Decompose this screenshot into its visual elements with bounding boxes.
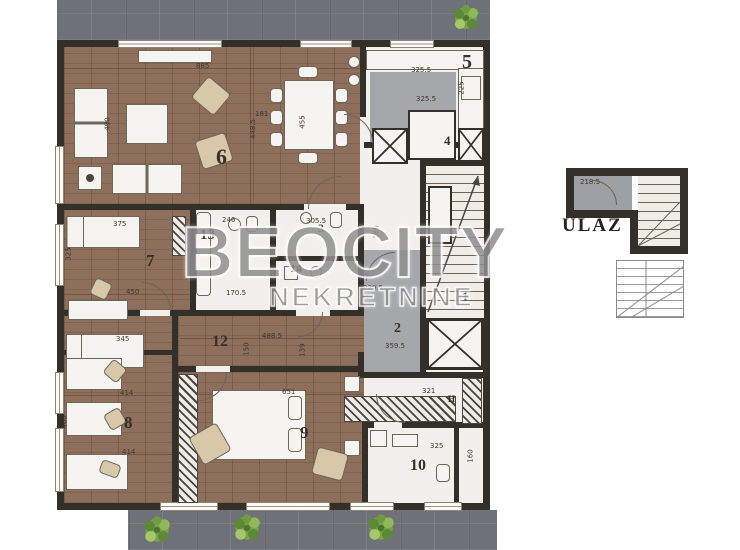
sink-icon bbox=[348, 56, 360, 68]
shaft-box bbox=[458, 128, 484, 162]
window bbox=[55, 224, 64, 286]
wall bbox=[362, 428, 368, 503]
window bbox=[118, 40, 222, 48]
kitchen-counter bbox=[366, 50, 484, 70]
plant-icon bbox=[140, 513, 174, 550]
dim-line bbox=[180, 338, 364, 339]
sofa bbox=[112, 164, 182, 194]
wall bbox=[64, 204, 304, 210]
wall bbox=[230, 366, 364, 372]
sofa bbox=[74, 88, 108, 158]
chair bbox=[270, 88, 283, 103]
wall bbox=[178, 366, 196, 372]
window bbox=[55, 372, 64, 414]
stove-icon bbox=[461, 76, 481, 100]
wall bbox=[454, 428, 459, 503]
balcony-door bbox=[246, 502, 330, 511]
floor-corridor-12 bbox=[178, 316, 364, 366]
wall bbox=[680, 168, 688, 254]
sink-icon bbox=[392, 434, 418, 447]
sink-icon bbox=[348, 74, 360, 86]
chair bbox=[298, 66, 318, 78]
bed bbox=[66, 216, 140, 248]
plant-icon bbox=[450, 2, 482, 39]
window bbox=[390, 40, 434, 48]
nightstand bbox=[344, 376, 360, 392]
window bbox=[300, 40, 352, 48]
chair bbox=[298, 152, 318, 164]
wardrobe bbox=[462, 378, 482, 424]
dim-line bbox=[250, 47, 251, 204]
shaft-box bbox=[372, 128, 408, 164]
stair-winder-lines bbox=[616, 260, 684, 318]
pillow bbox=[288, 396, 302, 420]
room-4 bbox=[408, 110, 456, 160]
stair-winder-lines bbox=[638, 176, 680, 246]
watermark-line2: NEKRETNINE bbox=[252, 282, 492, 313]
chair bbox=[270, 132, 283, 147]
toilet-icon bbox=[436, 464, 450, 482]
ulaz-label: ULAZ bbox=[562, 215, 623, 237]
dining-table bbox=[284, 80, 334, 150]
window bbox=[55, 146, 64, 204]
dim-line bbox=[64, 294, 190, 295]
chair bbox=[270, 110, 283, 125]
coffee-table bbox=[126, 104, 168, 144]
plant-pot-icon bbox=[86, 174, 94, 182]
washer-icon bbox=[370, 430, 387, 447]
chair bbox=[335, 88, 348, 103]
tv-unit bbox=[138, 50, 212, 63]
dim-line bbox=[64, 395, 172, 396]
window bbox=[160, 502, 218, 511]
desk bbox=[68, 300, 128, 320]
window bbox=[55, 428, 64, 492]
pillow bbox=[288, 428, 302, 452]
wall bbox=[566, 168, 688, 176]
elevator-box bbox=[426, 318, 484, 370]
window bbox=[350, 502, 394, 511]
window bbox=[424, 502, 462, 511]
terrace-top bbox=[57, 0, 490, 40]
plant-icon bbox=[230, 511, 264, 550]
floor-plan-canvas: ULAZ 885490448.5181455325.5325.522537532… bbox=[0, 0, 740, 550]
plant-icon bbox=[364, 511, 398, 550]
terrace-bottom bbox=[128, 510, 497, 550]
